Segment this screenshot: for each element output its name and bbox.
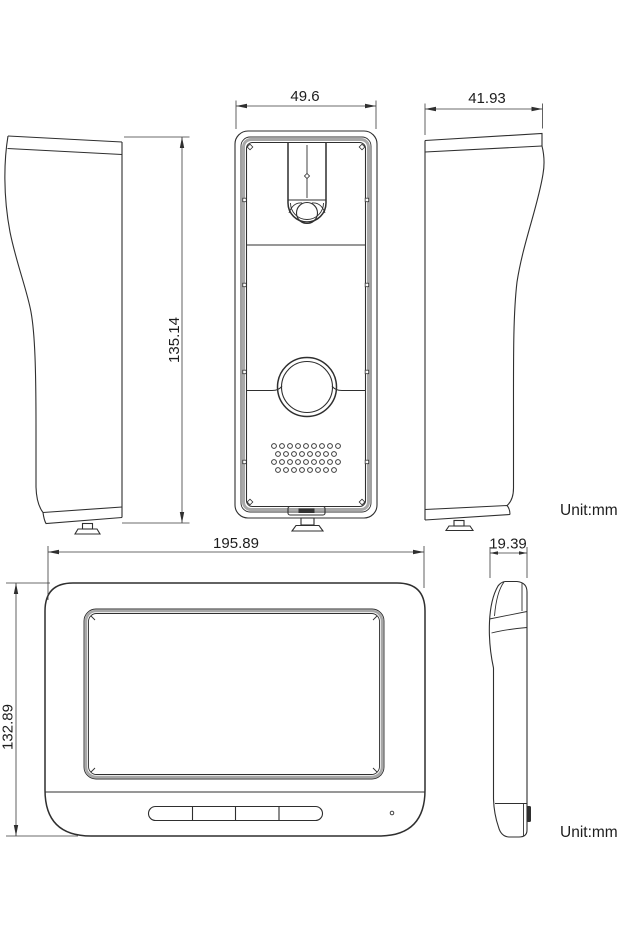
drawing-sheet: 135.14: [0, 0, 621, 931]
doorbell-height-label: 135.14: [166, 317, 183, 363]
doorbell-side-width-label: 41.93: [468, 90, 506, 107]
unit-label-top: Unit:mm: [560, 502, 618, 519]
monitor-side-view: [489, 582, 531, 838]
call-button: [247, 358, 366, 417]
doorbell-front-width-label: 49.6: [290, 88, 319, 105]
monitor-screen: [84, 609, 384, 779]
monitor-height-label: 132.89: [0, 704, 17, 750]
dimension-doorbell-side-width: 41.93: [425, 90, 543, 135]
dimension-monitor-height: 132.89: [0, 583, 78, 836]
mounting-foot-left: [75, 524, 100, 535]
doorbell-right-side-view: [425, 134, 544, 531]
monitor-front-view: [45, 583, 425, 836]
frame-corner-markers: [247, 144, 365, 505]
dimension-monitor-width: 195.89: [48, 535, 424, 600]
dimension-doorbell-front-width: 49.6: [236, 88, 376, 129]
camera-lens-icon: [297, 203, 318, 224]
mounting-foot-right: [446, 521, 473, 531]
dimension-doorbell-height: 135.14: [122, 137, 190, 523]
side-button: [527, 806, 532, 822]
mounting-foot-front: [292, 518, 323, 531]
dimension-monitor-depth: 19.39: [489, 536, 527, 579]
monitor-width-label: 195.89: [213, 535, 259, 552]
speaker-grille: [272, 444, 341, 473]
indicator-led: [390, 811, 394, 815]
doorbell-left-side-view: [5, 136, 122, 534]
unit-label-bottom: Unit:mm: [560, 824, 618, 841]
camera-module: [288, 143, 326, 224]
frame-side-markers: [243, 198, 369, 464]
monitor-button-bar: [149, 807, 323, 821]
monitor-depth-label: 19.39: [489, 536, 527, 553]
doorbell-front-view: [235, 131, 377, 531]
